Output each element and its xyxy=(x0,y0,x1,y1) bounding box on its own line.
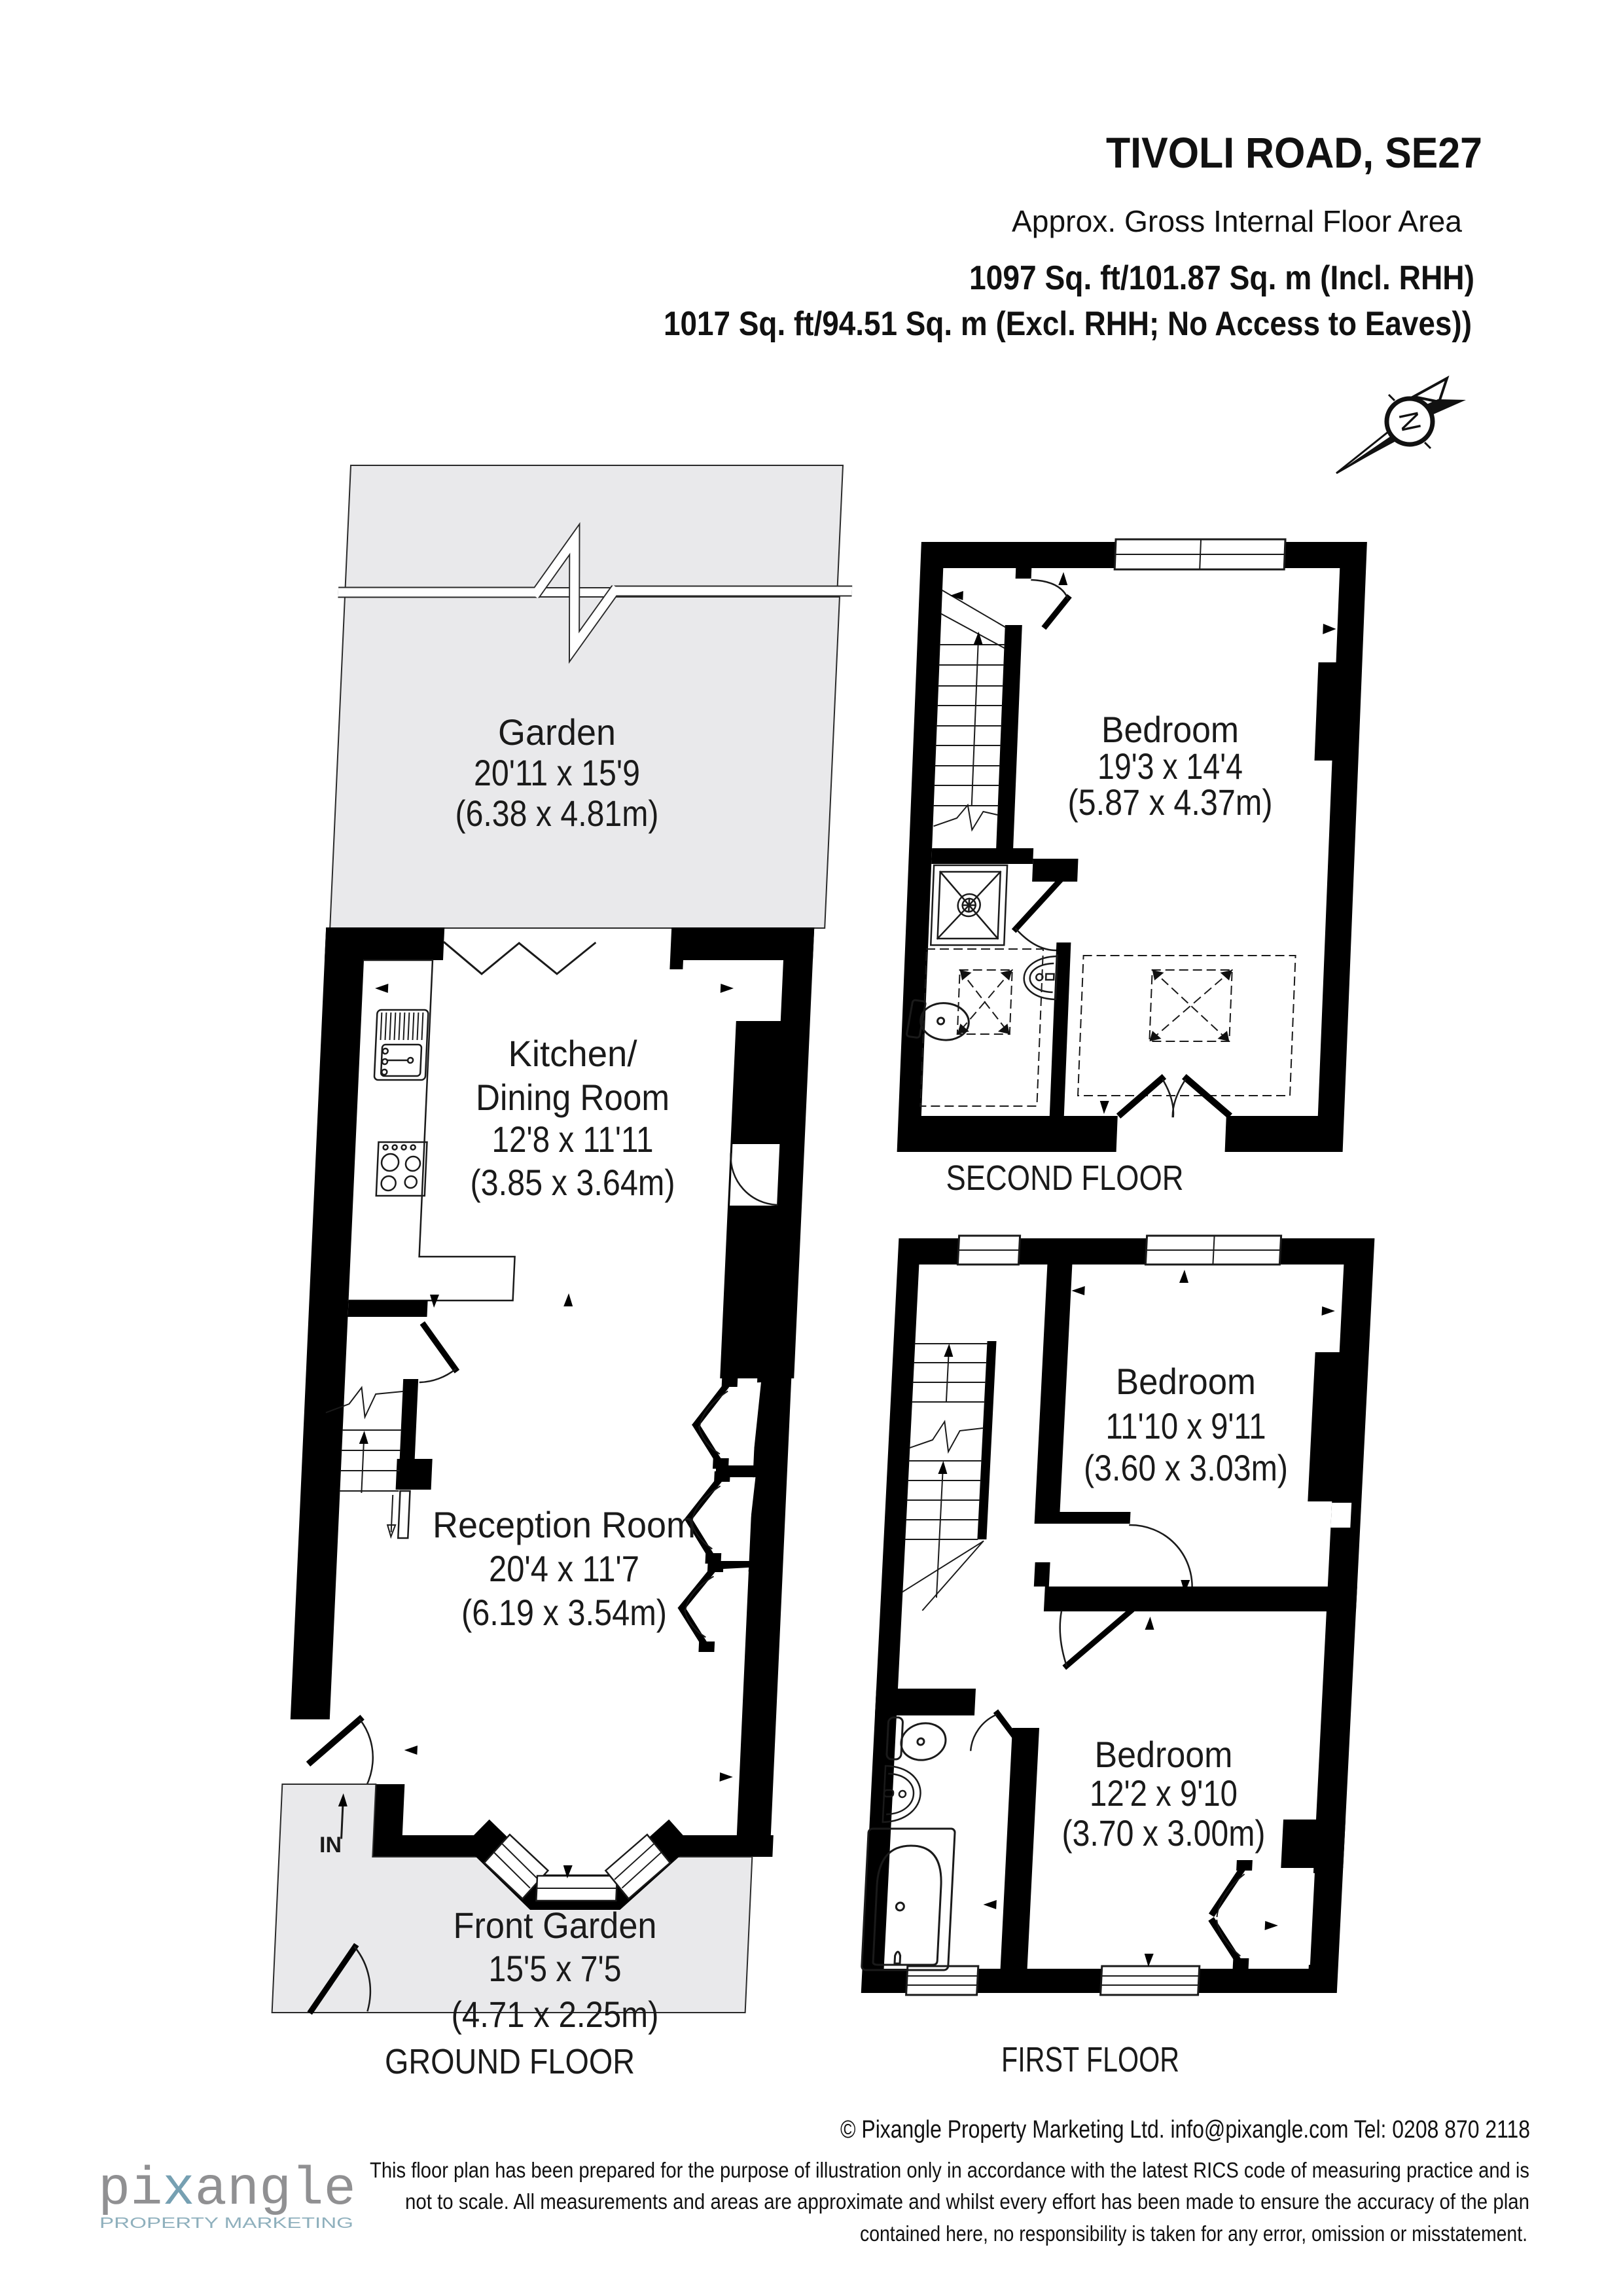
svg-text:© Pixangle Property Marketing: © Pixangle Property Marketing Ltd. info@… xyxy=(840,2116,1530,2144)
svg-text:GROUND FLOOR: GROUND FLOOR xyxy=(385,2042,635,2081)
svg-text:15'5 x 7'5: 15'5 x 7'5 xyxy=(489,1948,622,1989)
svg-text:TIVOLI ROAD, SE27: TIVOLI ROAD, SE27 xyxy=(1106,128,1482,177)
svg-text:(3.85 x 3.64m): (3.85 x 3.64m) xyxy=(471,1162,675,1203)
svg-text:Garden: Garden xyxy=(498,711,616,753)
svg-text:Front Garden: Front Garden xyxy=(454,1905,657,1946)
svg-text:contained here, no responsibil: contained here, no responsibility is tak… xyxy=(860,2221,1527,2246)
svg-text:SECOND FLOOR: SECOND FLOOR xyxy=(946,1158,1184,1198)
svg-text:This floor plan has been prepa: This floor plan has been prepared for th… xyxy=(370,2158,1529,2182)
svg-text:(4.71 x 2.25m): (4.71 x 2.25m) xyxy=(452,1994,659,2035)
svg-text:Bedroom: Bedroom xyxy=(1095,1734,1233,1775)
svg-text:1097 Sq. ft/101.87 Sq. m (Incl: 1097 Sq. ft/101.87 Sq. m (Incl. RHH) xyxy=(969,259,1474,297)
svg-text:(3.70 x 3.00m): (3.70 x 3.00m) xyxy=(1062,1812,1266,1854)
svg-text:Approx. Gross Internal Floor A: Approx. Gross Internal Floor Area xyxy=(1012,204,1462,238)
svg-text:20'4 x 11'7: 20'4 x 11'7 xyxy=(489,1548,639,1589)
svg-text:pixangle: pixangle xyxy=(98,2159,356,2220)
svg-text:Kitchen/: Kitchen/ xyxy=(508,1033,637,1074)
svg-text:FIRST FLOOR: FIRST FLOOR xyxy=(1001,2040,1179,2079)
svg-text:(5.87 x 4.37m): (5.87 x 4.37m) xyxy=(1068,781,1273,823)
svg-text:PROPERTY MARKETING: PROPERTY MARKETING xyxy=(99,2214,353,2231)
svg-text:Dining Room: Dining Room xyxy=(476,1077,669,1118)
svg-text:1017 Sq. ft/94.51 Sq. m (Excl.: 1017 Sq. ft/94.51 Sq. m (Excl. RHH; No A… xyxy=(664,305,1472,343)
svg-text:12'8 x 11'11: 12'8 x 11'11 xyxy=(492,1119,654,1160)
svg-text:20'11 x 15'9: 20'11 x 15'9 xyxy=(474,752,640,793)
svg-text:not to scale. All measurements: not to scale. All measurements and areas… xyxy=(405,2189,1529,2214)
svg-text:Bedroom: Bedroom xyxy=(1116,1361,1256,1402)
svg-text:IN: IN xyxy=(319,1833,342,1857)
svg-text:11'10 x 9'11: 11'10 x 9'11 xyxy=(1106,1405,1266,1446)
svg-text:Reception Room: Reception Room xyxy=(433,1504,696,1545)
svg-text:(6.19 x 3.54m): (6.19 x 3.54m) xyxy=(461,1592,667,1633)
svg-text:(3.60 x 3.03m): (3.60 x 3.03m) xyxy=(1084,1447,1288,1488)
svg-text:(6.38 x 4.81m): (6.38 x 4.81m) xyxy=(455,793,659,834)
svg-text:12'2 x 9'10: 12'2 x 9'10 xyxy=(1090,1772,1238,1814)
svg-text:19'3 x 14'4: 19'3 x 14'4 xyxy=(1097,745,1243,787)
svg-text:Bedroom: Bedroom xyxy=(1101,709,1239,750)
